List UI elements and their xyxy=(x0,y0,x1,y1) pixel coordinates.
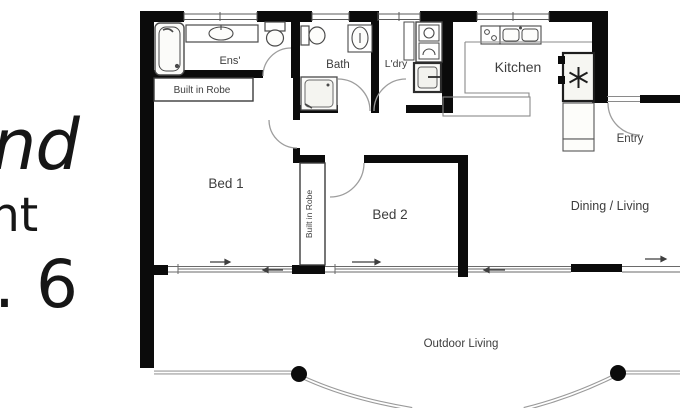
cropped-headline-fragment: nd xyxy=(0,110,79,180)
shower-icon xyxy=(301,77,337,110)
label-dining-living: Dining / Living xyxy=(571,199,650,213)
balcony-post-dot xyxy=(291,366,307,382)
label-laundry: L'dry xyxy=(385,58,408,70)
washer-icon xyxy=(419,25,439,41)
cooktop-icon xyxy=(481,26,500,44)
vanity-basin-icon-2 xyxy=(348,25,372,52)
fridge xyxy=(558,53,594,101)
double-sink-icon xyxy=(500,26,541,44)
pantry-cupboards xyxy=(563,103,594,151)
bathtub-icon xyxy=(155,23,184,75)
label-outdoor-living: Outdoor Living xyxy=(424,338,499,350)
toilet-icon xyxy=(265,22,285,46)
toilet-icon-2 xyxy=(301,26,325,45)
label-built-in-robe-2: Built in Robe xyxy=(304,190,314,238)
label-ensuite: Ens' xyxy=(219,55,240,67)
entry-threshold xyxy=(607,97,640,102)
label-entry: Entry xyxy=(617,133,644,145)
label-bed1: Bed 1 xyxy=(208,176,243,191)
balcony-post-dot xyxy=(610,365,626,381)
label-built-in-robe-1: Built in Robe xyxy=(174,85,231,96)
cropped-number-fragment: . 6 xyxy=(0,252,78,318)
laundry-tub-icon xyxy=(414,63,441,92)
balcony-edge xyxy=(154,365,680,408)
label-bath: Bath xyxy=(326,59,350,71)
floorplan-drawing: Ens' Built in Robe Bed 1 Bath L'dry Kitc… xyxy=(0,0,680,408)
label-kitchen: Kitchen xyxy=(495,59,542,75)
laundry-appliances xyxy=(404,22,442,62)
dryer-icon xyxy=(419,43,439,59)
vanity-basin-icon xyxy=(186,25,258,42)
floorplan-page: nd nt . 6 xyxy=(0,0,680,408)
cropped-subtitle-fragment: nt xyxy=(0,192,38,239)
label-bed2: Bed 2 xyxy=(372,207,407,222)
